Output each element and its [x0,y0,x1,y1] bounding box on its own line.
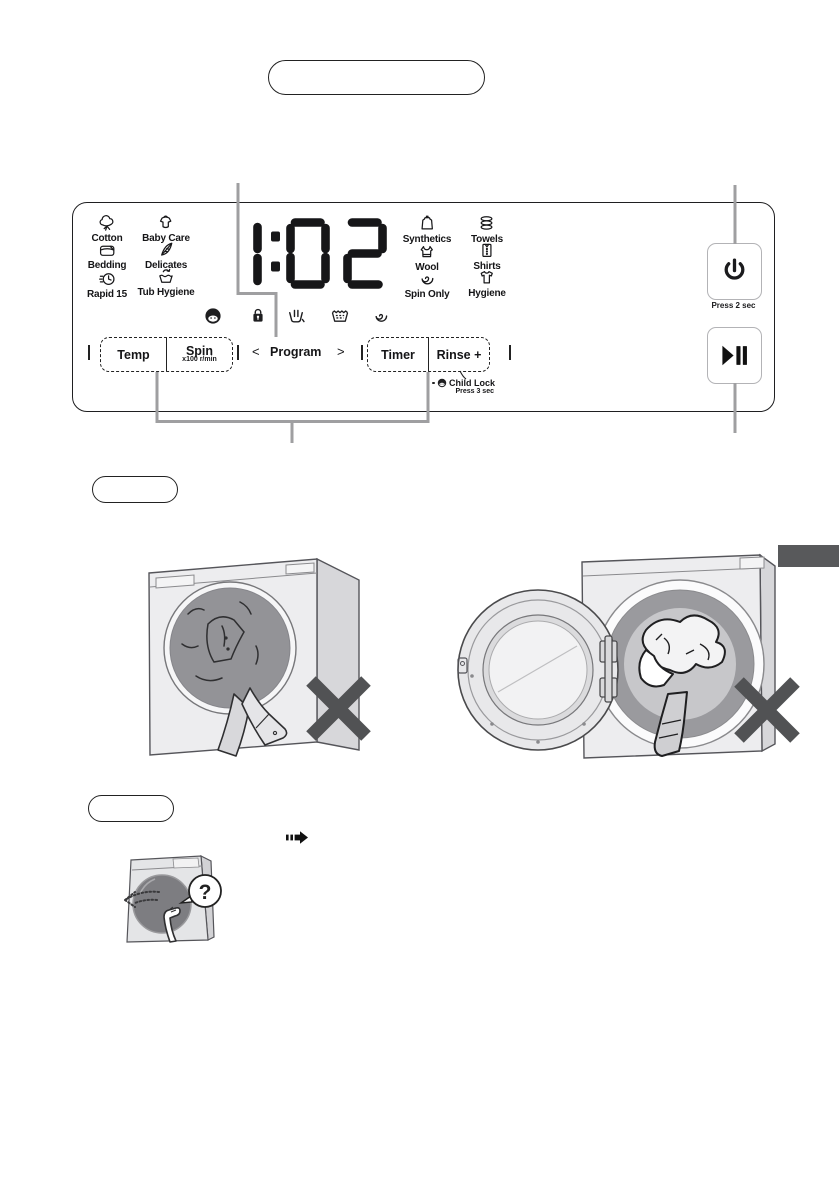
baby-care-icon [156,213,175,232]
wool-icon [417,242,436,261]
manual-page: Cotton Baby Care Bedding Delicates Rapid… [0,0,839,1191]
door-lock-icon [250,306,267,330]
timer-rinse-button-group: Timer Rinse + [367,337,490,372]
rinse-label: Rinse + [437,348,482,362]
program-synthetics: Synthetics [403,214,452,245]
prewash-tub-icon [287,307,306,330]
panel-separator [361,345,363,360]
seven-segment-digits [250,214,390,294]
power-icon [719,257,750,287]
child-lock-face-icon [437,378,447,388]
washtub-icon [330,307,350,329]
program-spin-only: Spin Only [405,269,450,300]
start-pause-button [707,327,762,384]
timer-label: Timer [381,348,415,362]
child-lock-caption: Child Lock Press 3 sec [400,378,495,395]
delicates-icon [157,240,176,259]
temp-label: Temp [117,348,149,362]
power-button [707,243,762,300]
tub-hygiene-icon [156,267,175,286]
machine-check-drum-illustration: ? [113,850,265,950]
spin-unit-label: x100 r/min [182,356,217,363]
reference-arrow-icon [286,830,309,845]
bedding-icon [97,242,116,259]
program-button: Program [270,345,321,359]
program-label: Hygiene [468,288,506,299]
program-label: Spin Only [405,289,450,300]
program-prev-chevron: < [252,344,260,359]
play-pause-icon [721,344,749,367]
rapid-15-icon [98,269,117,288]
timer-button: Timer [368,338,428,371]
cotton-icon [97,215,116,232]
program-bedding: Bedding [88,242,127,271]
spin-button: Spin x100 r/min [166,338,232,371]
towels-icon [478,214,497,233]
panel-separator [237,345,239,360]
program-label: Tub Hygiene [137,287,194,298]
program-label: Rapid 15 [87,289,127,300]
temp-spin-button-group: Temp Spin x100 r/min [100,337,233,372]
program-cotton: Cotton [91,215,122,244]
power-hint: Press 2 sec [703,301,764,310]
program-tub-hygiene: Tub Hygiene [137,267,194,298]
child-face-icon [204,307,222,330]
program-next-chevron: > [337,344,345,359]
child-lock-hint: Press 3 sec [400,388,494,395]
child-lock-label: Child Lock [449,378,495,388]
program-hygiene: Hygiene [468,268,506,299]
temp-button: Temp [101,338,166,371]
hygiene-icon [477,268,496,287]
page-edge-tab [778,545,839,567]
note-label-box-1 [92,476,178,503]
shirts-icon [477,241,496,260]
synthetics-icon [417,214,436,233]
spin-spiral-icon [372,307,390,330]
panel-separator [88,345,90,360]
spin-only-icon [418,269,437,288]
time-display: 1:02 [250,214,390,294]
question-mark: ? [199,881,212,904]
x-mark-left [303,673,374,744]
rinse-button: Rinse + [428,338,489,371]
program-rapid-15: Rapid 15 [87,269,127,300]
note-label-box-2 [88,795,174,822]
panel-separator [509,345,511,360]
bullet-dot [432,382,435,385]
heading-label-box [268,60,485,95]
x-mark-right [731,674,803,746]
